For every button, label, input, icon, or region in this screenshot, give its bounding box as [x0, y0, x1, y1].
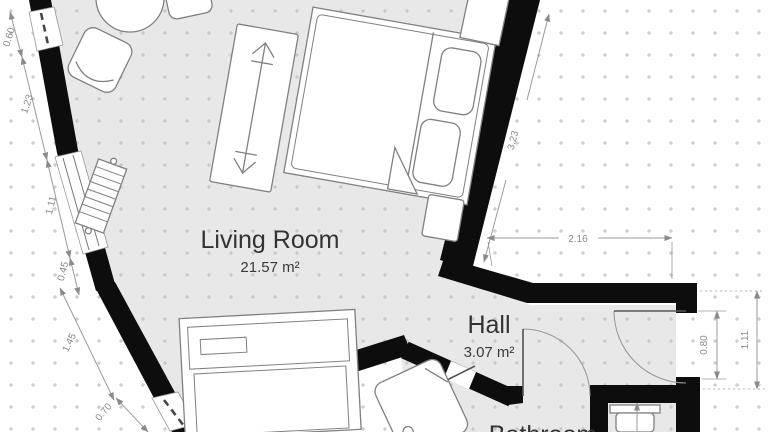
- floor-plan-canvas: 0.60 1.23 1.11 0.45 1.45 0.70 3.23 2.16 …: [0, 0, 768, 432]
- washbasin[interactable]: [610, 405, 660, 432]
- room-name-living-room: Living Room: [201, 226, 340, 254]
- dim-label-2-16: 2.16: [568, 234, 588, 245]
- room-area-hall: 3.07 m²: [464, 344, 515, 361]
- room-area-living-room: 21.57 m²: [240, 259, 299, 276]
- sideboard[interactable]: [179, 309, 361, 432]
- nightstand[interactable]: [422, 194, 465, 242]
- dim-label-1-11-right: 1.11: [740, 330, 751, 349]
- room-name-bathroom: Bathroom: [489, 421, 597, 432]
- room-name-hall: Hall: [467, 311, 510, 339]
- dim-label-0-80: 0.80: [699, 335, 710, 355]
- floor-plan-page: 0.60 1.23 1.11 0.45 1.45 0.70 3.23 2.16 …: [0, 0, 768, 432]
